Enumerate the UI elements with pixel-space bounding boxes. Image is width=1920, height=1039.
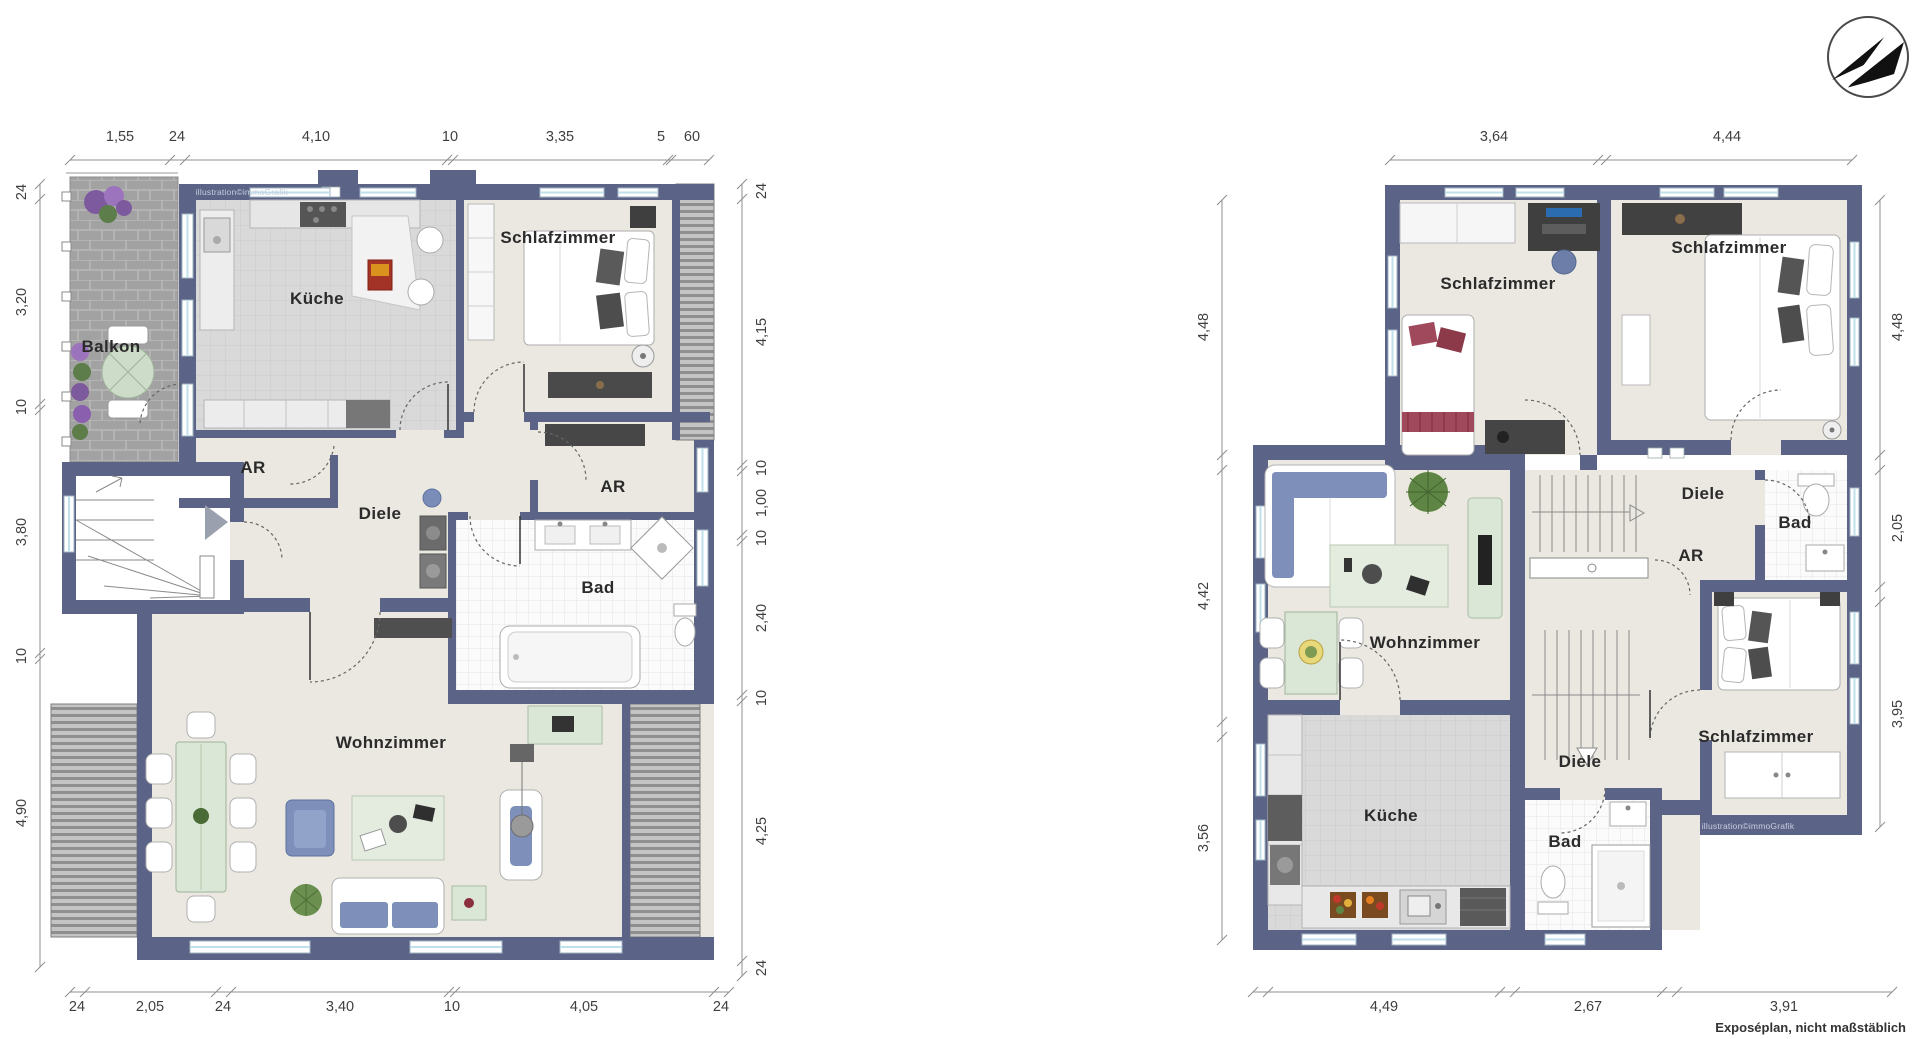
- room-label-balkon: Balkon: [81, 337, 140, 357]
- room-label-schlafzimmer: Schlafzimmer: [500, 228, 615, 248]
- dim-label: 3,35: [546, 129, 574, 145]
- dim-label: 10: [754, 460, 770, 476]
- dim-label: 5: [657, 129, 665, 145]
- watermark-right: illustration©immoGrafik: [1702, 821, 1795, 831]
- ar-sideboard: [545, 424, 645, 446]
- room-label-ar1: AR: [240, 458, 265, 478]
- dim-label: 60: [684, 129, 700, 145]
- dim-label: 2,05: [136, 999, 164, 1015]
- dim-label: 10: [14, 399, 30, 415]
- dim-label: 3,80: [14, 518, 30, 546]
- north-arrow-icon: [1828, 17, 1908, 97]
- dim-label: 24: [713, 999, 729, 1015]
- dim-label: 3,95: [1890, 700, 1906, 728]
- dim-label: 2,67: [1574, 999, 1602, 1015]
- room-label-bad2: Bad: [1548, 832, 1581, 852]
- dim-label: 24: [14, 184, 30, 200]
- dim-label: 1,55: [106, 129, 134, 145]
- dim-label: 3,20: [14, 288, 30, 316]
- room-label-bad: Bad: [581, 578, 614, 598]
- room-label-kueche2: Küche: [1364, 806, 1418, 826]
- dim-label: 3,64: [1480, 129, 1508, 145]
- dim-label: 3,91: [1770, 999, 1798, 1015]
- dim-label: 4,15: [754, 318, 770, 346]
- room-label-schlafzimmer3: Schlafzimmer: [1698, 727, 1813, 747]
- dim-label: 10: [442, 129, 458, 145]
- dim-label: 4,25: [754, 817, 770, 845]
- room-label-diele: Diele: [359, 504, 402, 524]
- dim-label: 4,05: [570, 999, 598, 1015]
- dim-label: 24: [215, 999, 231, 1015]
- dim-label: 4,49: [1370, 999, 1398, 1015]
- dim-label: 2,40: [754, 604, 770, 632]
- room-label-ar2: AR: [600, 477, 625, 497]
- dim-label: 3,56: [1196, 824, 1212, 852]
- room-label-kueche: Küche: [290, 289, 344, 309]
- dim-label: 4,48: [1196, 313, 1212, 341]
- room-label-bad1: Bad: [1778, 513, 1811, 533]
- footer-note: Exposéplan, nicht maßstäblich: [1715, 1020, 1906, 1035]
- dim-label: 4,44: [1713, 129, 1741, 145]
- dim-label: 10: [754, 530, 770, 546]
- dim-label: 4,48: [1890, 313, 1906, 341]
- floorplan-page: Balkon Küche Schlafzimmer AR Diele AR Ba…: [0, 0, 1920, 1039]
- dim-label: 10: [444, 999, 460, 1015]
- dim-label: 24: [69, 999, 85, 1015]
- room-label-diele2: Diele: [1559, 752, 1602, 772]
- dim-label: 4,10: [302, 129, 330, 145]
- left-plan: [51, 170, 714, 960]
- dim-label: 3,40: [326, 999, 354, 1015]
- room-label-wohnzimmer2: Wohnzimmer: [1370, 633, 1480, 653]
- dim-label: 24: [754, 183, 770, 199]
- dim-label: 4,42: [1196, 582, 1212, 610]
- floorplan-graphic: [0, 0, 1920, 1039]
- dim-label: 2,05: [1890, 514, 1906, 542]
- watermark-left: illustration©immoGrafik: [196, 187, 289, 197]
- dim-label: 10: [754, 690, 770, 706]
- dim-label: 1,00: [754, 489, 770, 517]
- dim-label: 24: [754, 960, 770, 976]
- kitchen-floor: [196, 200, 456, 430]
- room-label-wohnzimmer: Wohnzimmer: [336, 733, 446, 753]
- dim-label: 4,90: [14, 799, 30, 827]
- room-label-ar: AR: [1678, 546, 1703, 566]
- dim-label: 10: [14, 648, 30, 664]
- room-label-diele1: Diele: [1682, 484, 1725, 504]
- room-label-schlafzimmer2: Schlafzimmer: [1671, 238, 1786, 258]
- room-label-schlafzimmer1: Schlafzimmer: [1440, 274, 1555, 294]
- dim-label: 24: [169, 129, 185, 145]
